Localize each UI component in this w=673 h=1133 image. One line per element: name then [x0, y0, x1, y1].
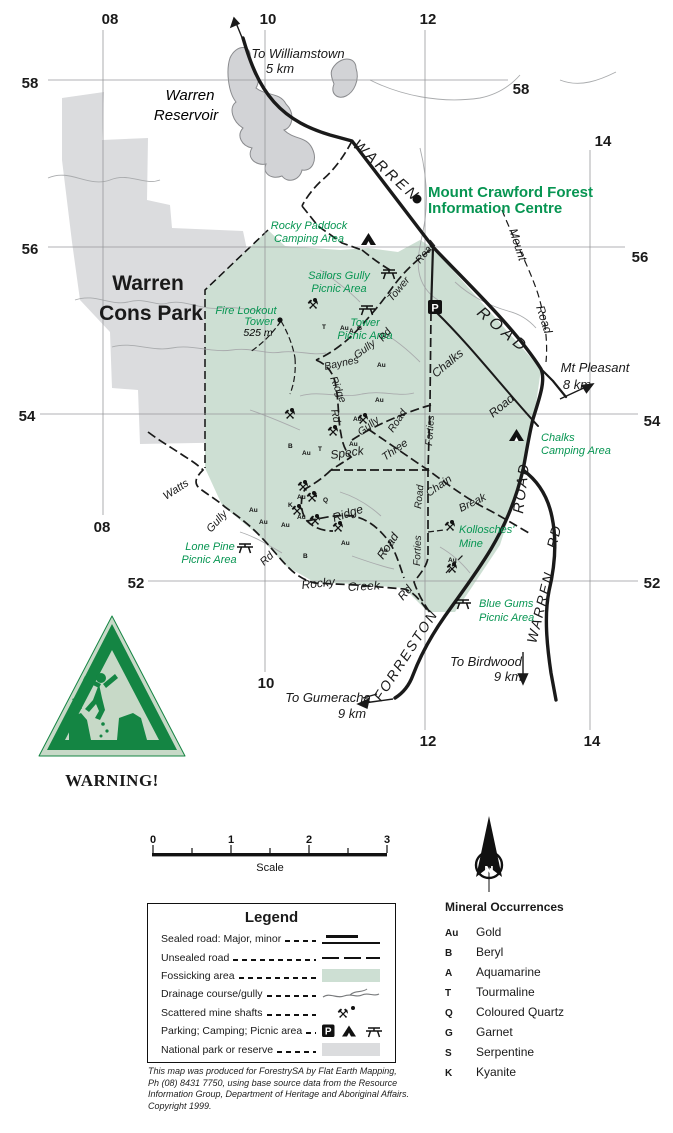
svg-text:Mount Crawford Forest: Mount Crawford Forest: [428, 184, 593, 201]
svg-text:Camping Area: Camping Area: [274, 233, 344, 245]
svg-text:Reservoir: Reservoir: [154, 107, 219, 124]
svg-text:Au: Au: [302, 450, 311, 457]
info-centre-label: Mount Crawford Forest Information Centre: [428, 184, 593, 217]
mineral-occurrences-panel: Mineral Occurrences Au Gold B Beryl A Aq…: [445, 900, 635, 1085]
facility-icons: P: [322, 1024, 386, 1038]
svg-text:Sailors Gully: Sailors Gully: [308, 270, 371, 282]
mineral-row: B Beryl: [445, 945, 635, 965]
svg-text:Road: Road: [533, 304, 555, 336]
svg-text:Picnic Area: Picnic Area: [311, 283, 366, 295]
mineral-row: T Tourmaline: [445, 985, 635, 1005]
warning-label: WARNING!: [33, 771, 191, 791]
svg-text:Creek: Creek: [347, 578, 381, 594]
map-credit: This map was produced for ForestrySA by …: [148, 1066, 458, 1112]
svg-text:56: 56: [632, 249, 649, 266]
svg-text:2: 2: [306, 834, 312, 846]
legend-box: Legend Sealed road: Major, minor Unseale…: [147, 903, 396, 1063]
picnic-icon-lone-pine: [237, 544, 253, 553]
svg-text:To Williamstown: To Williamstown: [251, 46, 344, 61]
svg-text:10: 10: [258, 675, 275, 692]
legend-title: Legend: [148, 909, 395, 926]
warning-sign: WARNING!: [33, 612, 191, 791]
mine-shaft-icon: ⚒: [322, 1004, 386, 1021]
svg-text:Au: Au: [377, 362, 386, 369]
svg-text:T: T: [318, 446, 322, 453]
picnic-icon: [366, 1028, 382, 1037]
svg-text:08: 08: [94, 519, 111, 536]
svg-text:Watts: Watts: [161, 477, 191, 503]
mineral-row: Q Coloured Quartz: [445, 1005, 635, 1025]
svg-text:RD: RD: [543, 522, 564, 549]
svg-text:525 m: 525 m: [243, 327, 272, 339]
svg-text:Lone Pine: Lone Pine: [185, 541, 235, 553]
svg-text:Au: Au: [341, 540, 350, 547]
svg-text:⚒: ⚒: [337, 1006, 349, 1021]
legend-row-fossicking-area: Fossicking area: [148, 967, 395, 985]
svg-text:Au: Au: [297, 514, 306, 521]
svg-text:Rocky: Rocky: [301, 574, 337, 592]
legend-row-facilities: Parking; Camping; Picnic area P: [148, 1022, 395, 1040]
unsealed-road-symbol: [322, 957, 386, 959]
svg-text:Blue Gums: Blue Gums: [479, 598, 534, 610]
svg-text:B: B: [288, 443, 293, 450]
svg-text:8 km: 8 km: [563, 377, 591, 392]
svg-text:To Birdwood: To Birdwood: [450, 654, 523, 669]
svg-text:9 km: 9 km: [338, 706, 366, 721]
svg-text:Forties: Forties: [412, 535, 424, 566]
scale-label: Scale: [256, 862, 284, 874]
svg-text:Information Centre: Information Centre: [428, 200, 562, 217]
warning-triangle-icon: [33, 612, 191, 764]
legend-row-unsealed-road: Unsealed road: [148, 948, 395, 966]
mineral-occurrences-title: Mineral Occurrences: [445, 900, 635, 914]
svg-text:B: B: [303, 553, 308, 560]
svg-text:Mount: Mount: [506, 227, 530, 264]
svg-text:To Gumeracha: To Gumeracha: [285, 690, 371, 705]
parking-icon: P: [428, 300, 442, 315]
svg-text:Mine: Mine: [459, 538, 483, 550]
svg-text:WARREN: WARREN: [349, 136, 423, 205]
mineral-row: A Aquamarine: [445, 965, 635, 985]
svg-text:Kollosches': Kollosches': [459, 524, 515, 536]
mineral-row: S Serpentine: [445, 1045, 635, 1065]
sealed-road-symbol: [322, 935, 386, 944]
svg-text:P: P: [431, 303, 438, 315]
svg-text:5 km: 5 km: [266, 61, 294, 76]
svg-text:Au: Au: [259, 519, 268, 526]
mineral-row: Au Gold: [445, 925, 635, 945]
svg-text:Q: Q: [323, 497, 328, 504]
svg-text:Camping Area: Camping Area: [541, 445, 611, 457]
svg-text:Warren: Warren: [166, 87, 215, 104]
svg-text:Warren: Warren: [112, 272, 184, 295]
svg-text:3: 3: [384, 834, 390, 846]
svg-text:12: 12: [420, 11, 437, 28]
svg-text:1: 1: [228, 834, 234, 846]
fossicking-area-swatch: [322, 969, 386, 982]
svg-text:Rocky Paddock: Rocky Paddock: [271, 220, 348, 232]
svg-text:Au: Au: [375, 397, 384, 404]
svg-text:58: 58: [22, 75, 39, 92]
fossicking-map-page: ⚒: [0, 0, 673, 1133]
svg-text:Mt Pleasant: Mt Pleasant: [561, 360, 631, 375]
svg-text:T: T: [322, 324, 326, 331]
parking-icon: P: [322, 1025, 335, 1038]
svg-text:56: 56: [22, 241, 39, 258]
svg-text:Chalks: Chalks: [541, 432, 575, 444]
north-letter: N: [484, 863, 493, 878]
svg-text:9 km: 9 km: [494, 669, 522, 684]
svg-text:0: 0: [150, 834, 156, 846]
svg-text:Cons Park: Cons Park: [99, 302, 203, 325]
camping-icon-rocky-paddock: [361, 233, 376, 245]
svg-text:52: 52: [644, 575, 661, 592]
svg-text:58: 58: [513, 81, 530, 98]
svg-text:54: 54: [19, 408, 36, 425]
svg-text:Au: Au: [249, 507, 258, 514]
national-park-swatch: [322, 1043, 386, 1056]
svg-text:K: K: [288, 502, 293, 509]
north-arrow-icon: N: [470, 814, 508, 896]
svg-text:Au: Au: [448, 557, 457, 564]
fire-lookout-dot: [277, 317, 282, 322]
camping-icon: [342, 1026, 356, 1037]
svg-text:52: 52: [128, 575, 145, 592]
svg-text:P: P: [325, 1027, 332, 1038]
svg-text:14: 14: [584, 733, 601, 750]
svg-text:S: S: [313, 492, 318, 499]
legend-row-sealed-road: Sealed road: Major, minor: [148, 930, 395, 948]
mineral-row: G Garnet: [445, 1025, 635, 1045]
svg-text:54: 54: [644, 413, 661, 430]
svg-text:Au: Au: [281, 522, 290, 529]
scale-bar: 0 1 2 3 Scale: [150, 832, 390, 876]
svg-text:10: 10: [260, 11, 277, 28]
legend-row-drainage: Drainage course/gully: [148, 985, 395, 1003]
svg-text:Au: Au: [297, 494, 306, 501]
mineral-row: K Kyanite: [445, 1065, 635, 1085]
svg-text:08: 08: [102, 11, 119, 28]
svg-text:Gully: Gully: [204, 507, 231, 535]
legend-row-mine-shafts: Scattered mine shafts ⚒: [148, 1004, 395, 1022]
svg-text:Forties: Forties: [424, 415, 437, 446]
svg-text:Picnic Area: Picnic Area: [479, 612, 534, 624]
drainage-squiggle-icon: [322, 987, 386, 1002]
reservoir-label: Warren Reservoir: [154, 87, 219, 124]
svg-text:Au: Au: [353, 416, 362, 423]
svg-text:12: 12: [420, 733, 437, 750]
legend-row-national-park: National park or reserve: [148, 1040, 395, 1058]
svg-text:Tower: Tower: [350, 317, 381, 329]
svg-text:Picnic Area: Picnic Area: [181, 554, 236, 566]
svg-text:14: 14: [595, 133, 612, 150]
